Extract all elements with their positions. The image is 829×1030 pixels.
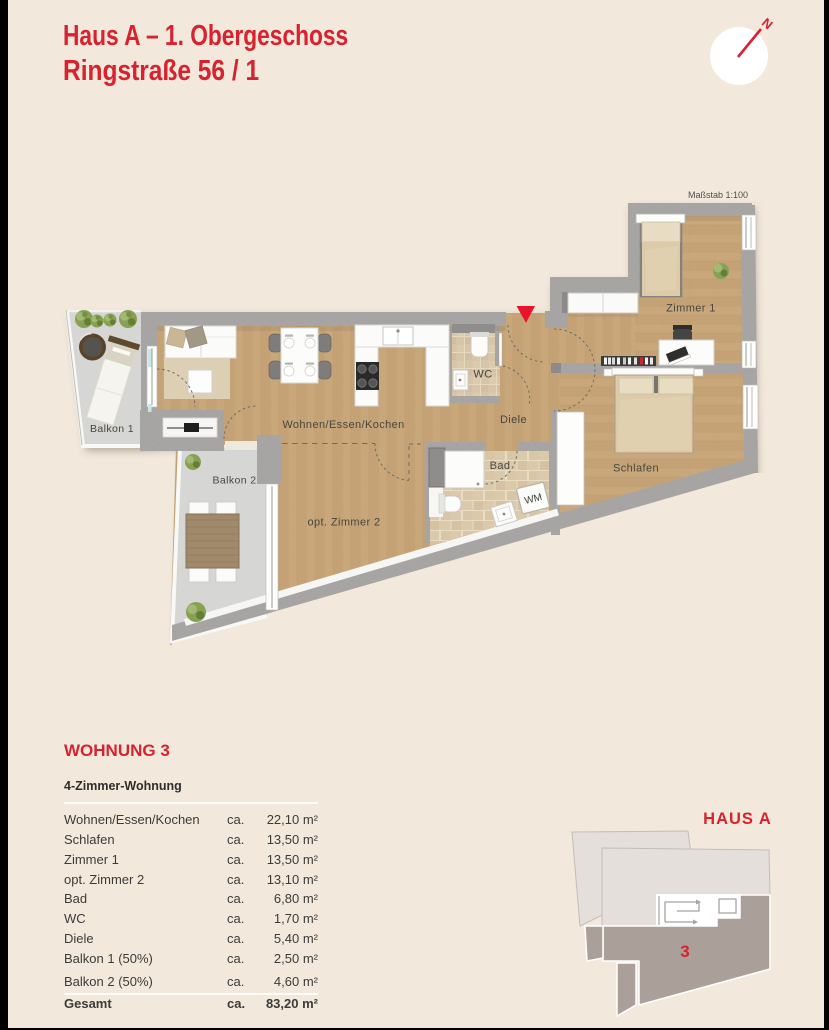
svg-text:HAUS A: HAUS A [703,810,772,828]
svg-text:Balkon 2: Balkon 2 [212,475,256,487]
svg-text:opt. Zimmer 2: opt. Zimmer 2 [307,517,380,529]
svg-text:Zimmer 1: Zimmer 1 [666,303,716,315]
svg-text:Balkon 1: Balkon 1 [90,423,134,435]
svg-text:Diele: Diele [500,414,527,426]
svg-text:WC: WC [473,369,492,381]
svg-text:Schlafen: Schlafen [613,463,659,475]
svg-text:Wohnen/Essen/Kochen: Wohnen/Essen/Kochen [282,419,404,431]
svg-text:Maßstab 1:100: Maßstab 1:100 [688,190,748,200]
svg-text:3: 3 [680,942,689,961]
svg-text:Bad: Bad [490,460,511,472]
